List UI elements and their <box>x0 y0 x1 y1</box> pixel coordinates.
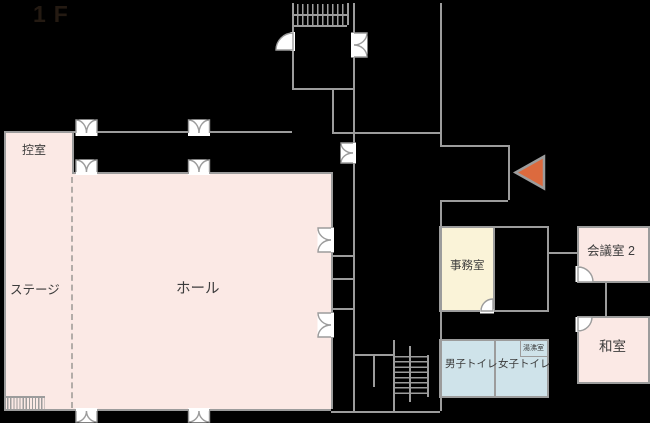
double-door-icon <box>76 411 87 422</box>
room-label-hikaeshitsu: 控室 <box>22 144 46 156</box>
wall-segment <box>440 200 508 202</box>
double-door-icon <box>354 33 367 45</box>
double-door-icon <box>199 160 210 172</box>
wall-segment <box>4 409 76 411</box>
wall-segment <box>292 3 294 32</box>
wall-segment <box>331 278 353 280</box>
wall-segment <box>292 88 353 90</box>
double-door-icon <box>87 160 98 172</box>
wall-segment <box>97 409 189 411</box>
wall-segment <box>440 200 442 411</box>
room-storage <box>493 226 549 312</box>
double-door-icon <box>87 411 98 422</box>
wall-segment <box>331 337 333 409</box>
room-label-kitchenette: 湯沸室 <box>523 345 544 352</box>
stage-steps-icon <box>4 397 45 409</box>
entrance-arrow-icon <box>516 157 545 189</box>
room-label-hall: ホール <box>176 282 220 297</box>
wall-segment <box>209 172 331 174</box>
double-door-gap <box>76 408 98 423</box>
wall-segment <box>97 131 189 133</box>
wall-segment <box>332 132 440 134</box>
room-label-stage: ステージ <box>10 284 60 297</box>
wall-segment <box>393 340 395 411</box>
double-door-icon <box>87 120 98 133</box>
wall-segment <box>331 308 353 310</box>
wall-segment <box>347 3 349 25</box>
room-area-stage-hikaeshitsu <box>5 132 72 409</box>
double-door-icon <box>199 120 210 133</box>
stage-boundary-dashed-line <box>71 177 73 408</box>
double-door-gap <box>188 408 210 423</box>
wall-segment <box>353 163 355 411</box>
wall-segment <box>427 355 429 397</box>
wall-segment <box>72 172 76 174</box>
room-label-meeting2: 会議室 2 <box>587 245 635 258</box>
wall-segment <box>373 355 375 387</box>
double-door-gap <box>188 120 210 137</box>
wall-segment <box>605 283 607 316</box>
floor-title: 1F <box>33 3 76 26</box>
wall-segment <box>353 57 355 143</box>
wall-segment <box>72 131 74 172</box>
wall-segment <box>353 3 355 33</box>
wall-segment <box>331 172 333 228</box>
double-door-icon <box>76 160 87 172</box>
wall-segment <box>292 14 347 16</box>
double-door-icon <box>189 160 200 172</box>
wall-segment <box>292 51 294 88</box>
double-door-icon <box>341 143 353 153</box>
door-gap <box>291 32 296 51</box>
floor-plan: 1F 控室 ステージ ホール 事務室 会議室 2 和室 男子トイレ 女子トイレ … <box>0 0 650 423</box>
wall-segment <box>548 252 578 254</box>
double-door-icon <box>354 45 367 57</box>
double-door-gap <box>76 120 98 137</box>
wall-segment <box>4 131 6 411</box>
wall-segment <box>97 172 189 174</box>
wall-segment <box>331 411 440 413</box>
wall-segment <box>4 131 76 133</box>
double-door-gap <box>351 33 368 58</box>
room-label-office: 事務室 <box>450 261 485 273</box>
double-door-icon <box>189 411 200 422</box>
door-swing-icon <box>276 33 293 50</box>
room-label-womens-toilet: 女子トイレ <box>498 359 551 370</box>
staircase-stringer <box>409 346 411 402</box>
wall-segment <box>331 255 353 257</box>
double-door-icon <box>199 411 210 422</box>
wall-segment <box>440 145 508 147</box>
wall-segment <box>508 145 510 200</box>
room-label-mens-toilet: 男子トイレ <box>445 359 498 370</box>
double-door-icon <box>76 120 87 133</box>
wall-segment <box>332 88 334 132</box>
wall-segment <box>4 396 45 398</box>
double-door-icon <box>189 120 200 133</box>
wall-segment <box>209 409 331 411</box>
double-door-icon <box>341 153 353 163</box>
wall-segment <box>440 3 442 145</box>
wall-segment <box>209 131 292 133</box>
wall-segment <box>331 252 333 313</box>
wall-segment <box>292 25 347 27</box>
double-door-gap <box>341 143 357 164</box>
room-label-washitsu: 和室 <box>599 340 626 354</box>
